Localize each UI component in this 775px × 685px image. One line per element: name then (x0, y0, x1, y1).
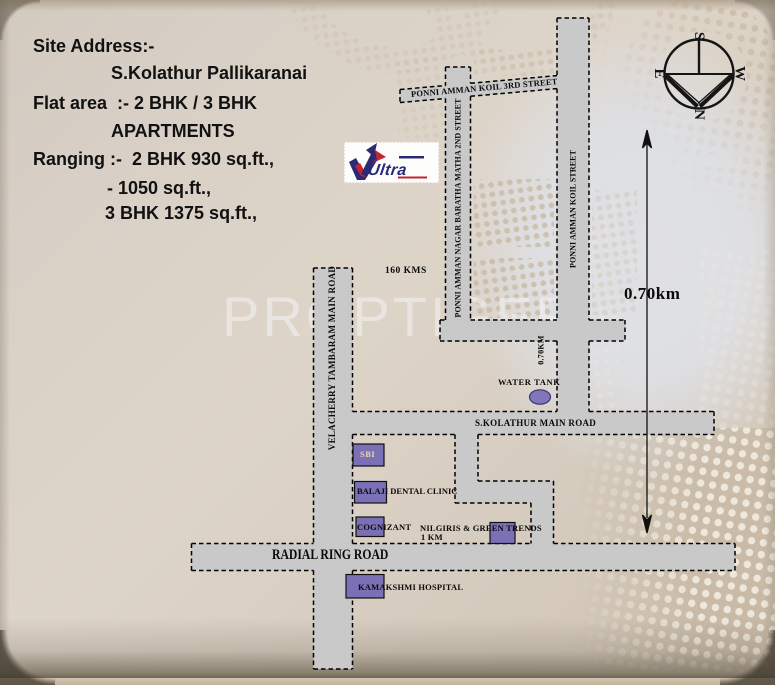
svg-text:N: N (691, 109, 707, 120)
svg-text:Ultra: Ultra (367, 161, 408, 179)
svg-text:W: W (732, 66, 748, 81)
svg-text:E: E (651, 68, 667, 78)
svg-text:S: S (691, 32, 707, 40)
